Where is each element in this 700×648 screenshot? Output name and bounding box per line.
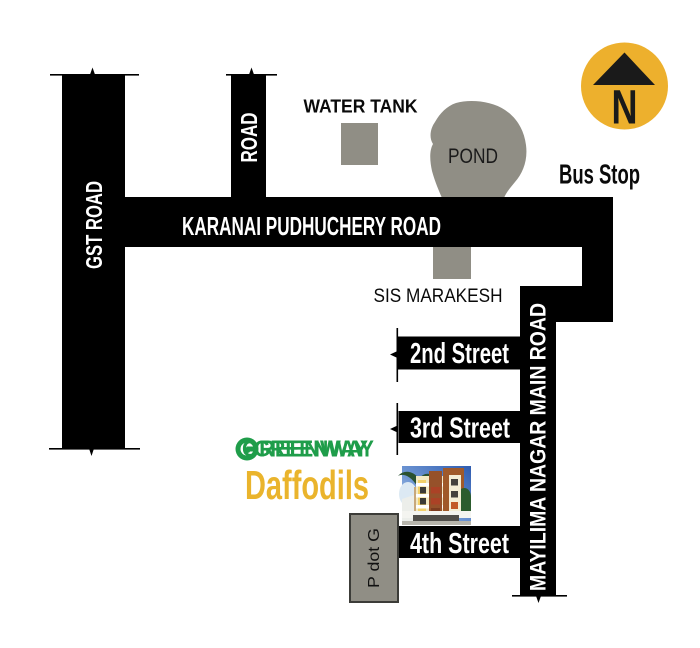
svg-text:N: N [612,81,638,134]
svg-text:Bus Stop: Bus Stop [559,159,640,190]
svg-text:SIS MARAKESH: SIS MARAKESH [374,286,503,307]
svg-text:ROAD: ROAD [236,113,262,163]
svg-text:POND: POND [448,145,498,168]
svg-text:MAYILIMA NAGAR MAIN ROAD: MAYILIMA NAGAR MAIN ROAD [526,303,551,591]
svg-text:WATER TANK: WATER TANK [304,95,419,116]
svg-text:Daffodils: Daffodils [245,462,369,508]
svg-text:GST ROAD: GST ROAD [81,181,107,269]
svg-text:4th Street: 4th Street [410,528,509,560]
svg-text:P dot G: P dot G [366,528,383,588]
svg-text:2nd Street: 2nd Street [410,338,509,370]
svg-text:KARANAI PUDHUCHERY ROAD: KARANAI PUDHUCHERY ROAD [182,213,441,241]
svg-text:3rd Street: 3rd Street [410,412,510,444]
svg-text:GREENWAY: GREENWAY [254,436,374,462]
